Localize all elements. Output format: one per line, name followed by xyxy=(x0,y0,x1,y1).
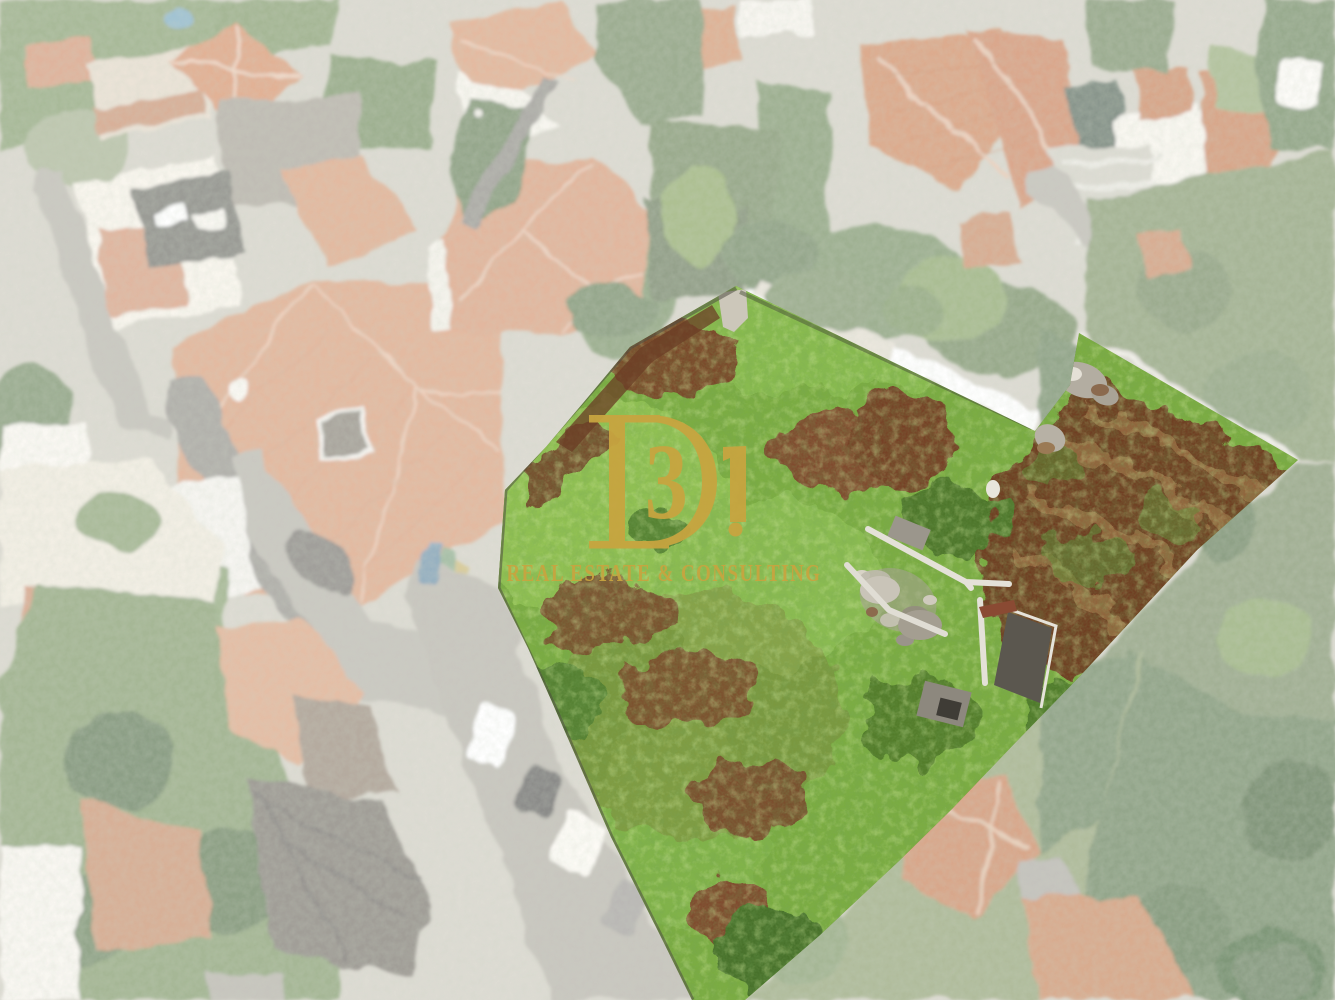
svg-text:3: 3 xyxy=(645,423,688,542)
svg-text:REAL ESTATE & CONSULTING: REAL ESTATE & CONSULTING xyxy=(507,561,822,587)
